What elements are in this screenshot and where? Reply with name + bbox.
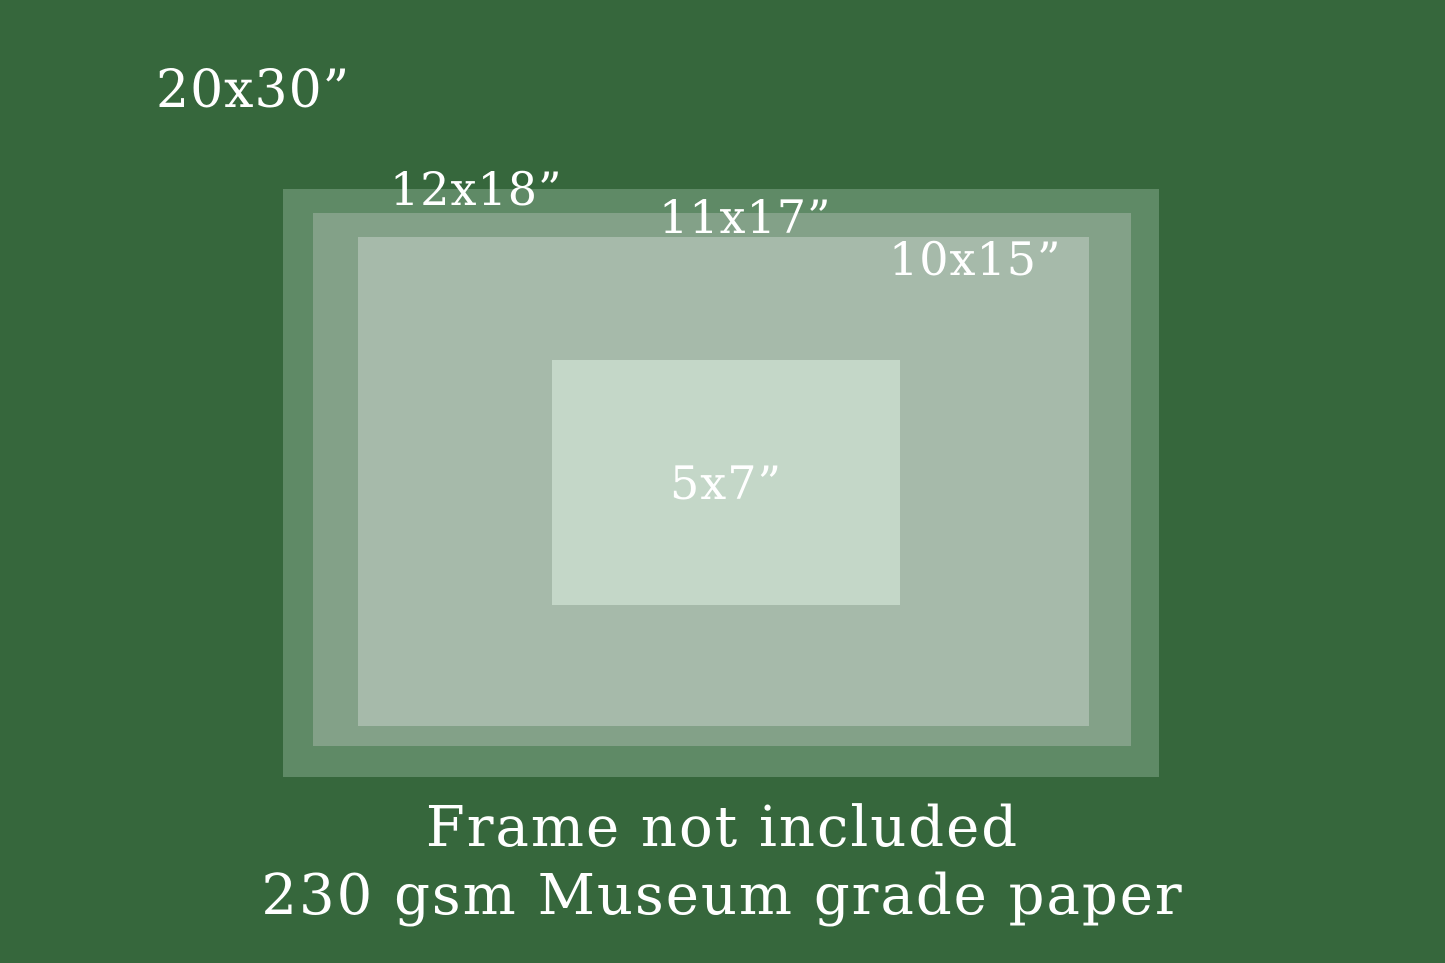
size-label-5x7: 5x7” (670, 460, 782, 506)
print-size-diagram: 20x30” 12x18” 11x17” 10x15” 5x7” Frame n… (0, 0, 1445, 963)
size-label-20x30: 20x30” (156, 64, 350, 116)
size-label-10x15: 10x15” (889, 236, 1062, 282)
footer-paper-spec: 230 gsm Museum grade paper (0, 868, 1445, 924)
size-label-11x17: 11x17” (659, 194, 832, 240)
size-label-12x18: 12x18” (390, 166, 563, 212)
print-size-rect-5x7: 5x7” (552, 360, 900, 605)
footer-frame-note: Frame not included (0, 800, 1445, 856)
